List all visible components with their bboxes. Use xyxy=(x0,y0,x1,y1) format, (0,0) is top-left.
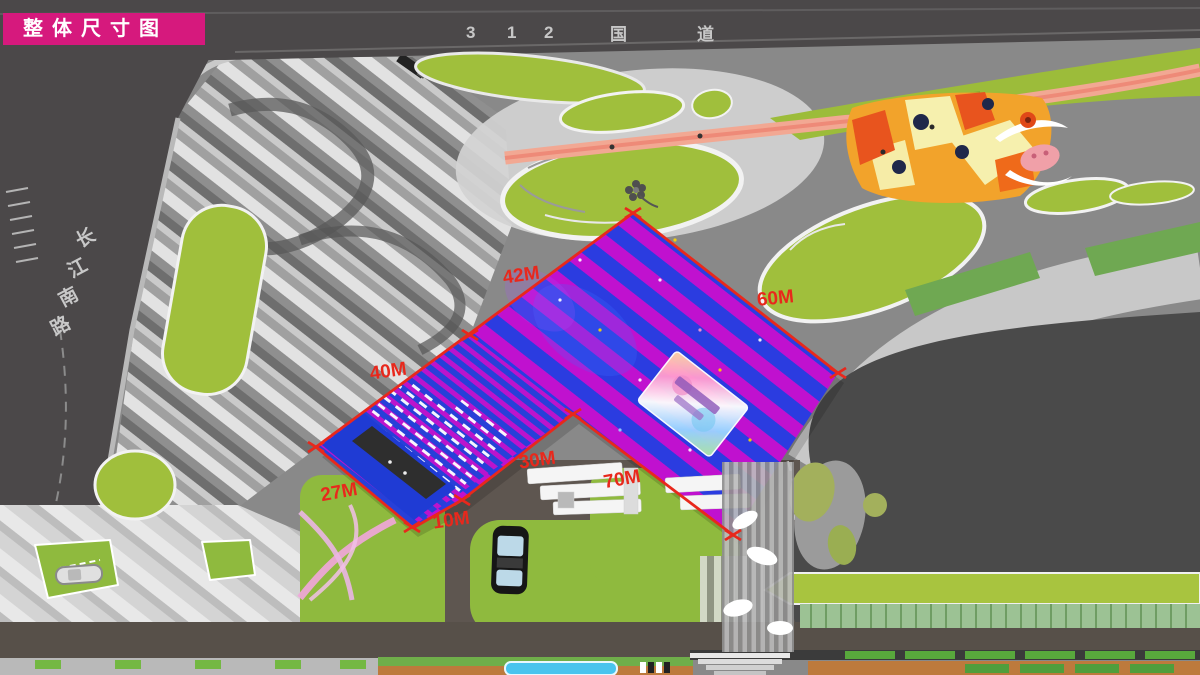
pergola xyxy=(800,604,1200,628)
page-title: 整体尺寸图 xyxy=(3,13,205,45)
site-plan-drawing: 42M 60M 40M 30M 70M 27M 10M 3 1 2 国 道 长 … xyxy=(0,0,1200,675)
road-char: 2 xyxy=(544,23,553,42)
east-green-strip xyxy=(765,573,1200,604)
road-char: 道 xyxy=(697,24,714,44)
dim-label-60m: 60M xyxy=(756,286,795,311)
site-plan-page: 42M 60M 40M 30M 70M 27M 10M 3 1 2 国 道 长 … xyxy=(0,0,1200,675)
road-char: 1 xyxy=(507,23,516,42)
car-icon xyxy=(55,564,102,584)
road-char: 3 xyxy=(466,23,475,42)
bus-icon xyxy=(491,525,529,594)
road-char: 国 xyxy=(610,25,627,44)
water-feature xyxy=(505,662,617,675)
